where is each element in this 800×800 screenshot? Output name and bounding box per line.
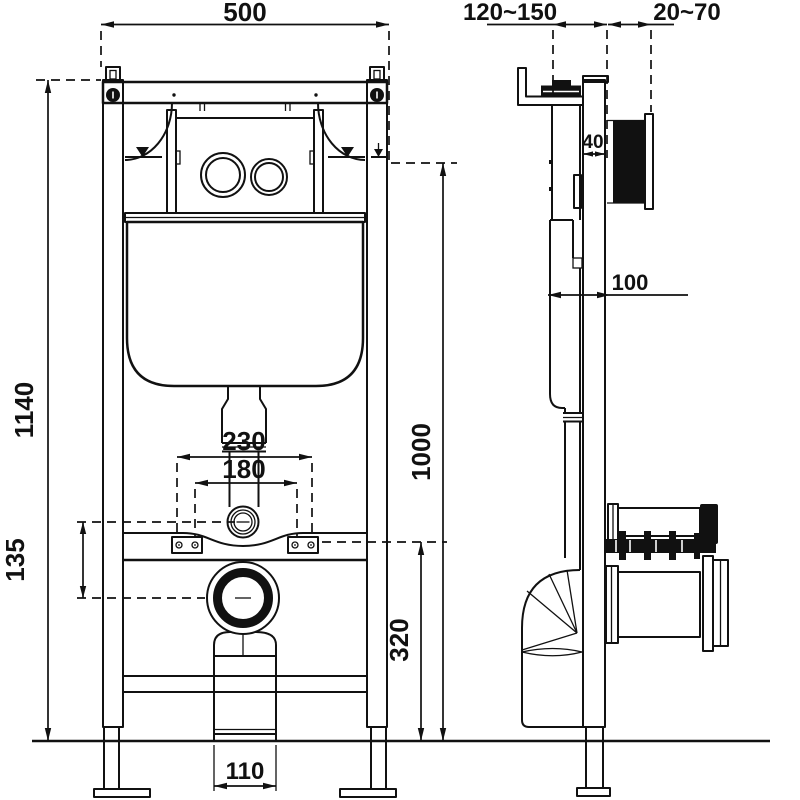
dim-label-180: 180 [222, 454, 265, 484]
dim-label-100: 100 [612, 270, 649, 295]
side-foot-plate [577, 788, 610, 796]
drain-elbow-side [522, 570, 584, 727]
drain-pipe [214, 656, 276, 741]
flush-pipe-side [563, 408, 582, 570]
finished-wall-plate [645, 114, 653, 209]
frame-rail-side [583, 80, 605, 727]
dim-wall-finish-range: 20~70 [608, 0, 721, 28]
bracket-bolt [541, 80, 581, 98]
dim-outlet-height: 320 [322, 542, 447, 741]
dim-total-height: 1140 [9, 80, 101, 741]
right-gusset-arc [318, 103, 365, 160]
flush-plate [176, 118, 314, 213]
dim-label-500: 500 [223, 0, 266, 27]
dim-label-1000: 1000 [406, 423, 436, 481]
top-crossbar [103, 82, 387, 103]
dim-front-width: 500 [101, 0, 389, 160]
dim-drain-width: 110 [214, 745, 276, 791]
technical-drawing-page: 500 1140 1000 3 [0, 0, 800, 800]
drain-socket [207, 562, 279, 634]
dim-label-110: 110 [226, 758, 265, 785]
bar-dot [314, 93, 317, 96]
dim-label-20-70: 20~70 [653, 0, 720, 26]
flush-buttons [201, 153, 287, 197]
flush-plate-side [607, 114, 653, 209]
side-view-structure [518, 68, 653, 796]
dim-depth-range: 120~150 [463, 0, 607, 28]
cistern-side [549, 105, 582, 413]
dimension-annotations: 500 1140 1000 3 [0, 0, 721, 791]
dim-label-135: 135 [0, 538, 30, 581]
level-marks [125, 143, 386, 157]
hanger-tabs [106, 67, 384, 81]
dim-unit-depth: 100 [548, 270, 688, 298]
dim-label-1140: 1140 [9, 382, 39, 438]
flush-outlet-connector [604, 504, 718, 560]
side-view-connectors [604, 504, 728, 651]
dim-label-230: 230 [222, 426, 265, 456]
dim-stud-spacing-narrow: 180 [195, 454, 297, 536]
front-view-cistern [123, 222, 367, 560]
left-gusset-arc [125, 103, 172, 160]
toilet-frame-installation-diagram: 500 1140 1000 3 [0, 0, 800, 800]
left-upright [103, 80, 123, 727]
corner-bolts [106, 88, 384, 102]
cistern-tank [127, 222, 363, 386]
dim-label-120-150: 120~150 [463, 0, 557, 26]
lower-crossbar [123, 676, 367, 692]
dim-label-40: 40 [582, 132, 603, 153]
bar-dot [172, 93, 175, 96]
front-view-drain [123, 562, 367, 741]
drain-flare [214, 632, 276, 656]
dim-label-320: 320 [384, 618, 414, 661]
dim-rail-depth: 40 [582, 132, 605, 157]
side-foot [586, 727, 603, 788]
drain-outlet-connector [606, 556, 728, 651]
front-view-flush-plate [125, 110, 365, 222]
